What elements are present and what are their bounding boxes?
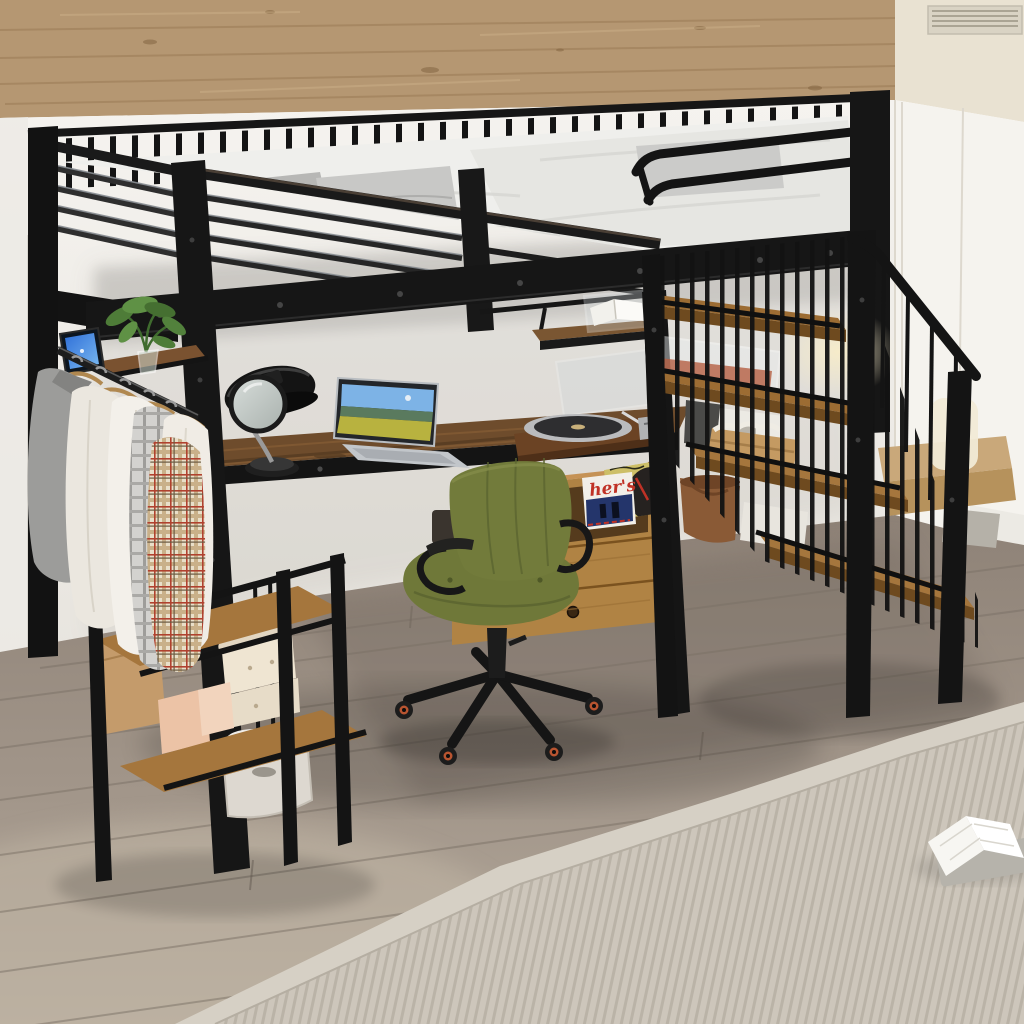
product-photo-canvas: her's xyxy=(0,0,1024,1024)
round-mirror xyxy=(231,377,285,431)
scene-svg: her's xyxy=(0,0,1024,1024)
chair-backrest xyxy=(450,461,572,581)
dust-cover xyxy=(556,350,654,416)
vinyl-record-hers: her's xyxy=(582,472,638,530)
left-closet-panel xyxy=(0,117,28,652)
chair-column xyxy=(487,628,507,678)
glass-vase xyxy=(138,350,158,374)
air-vent xyxy=(928,6,1022,34)
peach-box-2 xyxy=(198,682,234,736)
garment-beige-tartan xyxy=(147,437,205,672)
